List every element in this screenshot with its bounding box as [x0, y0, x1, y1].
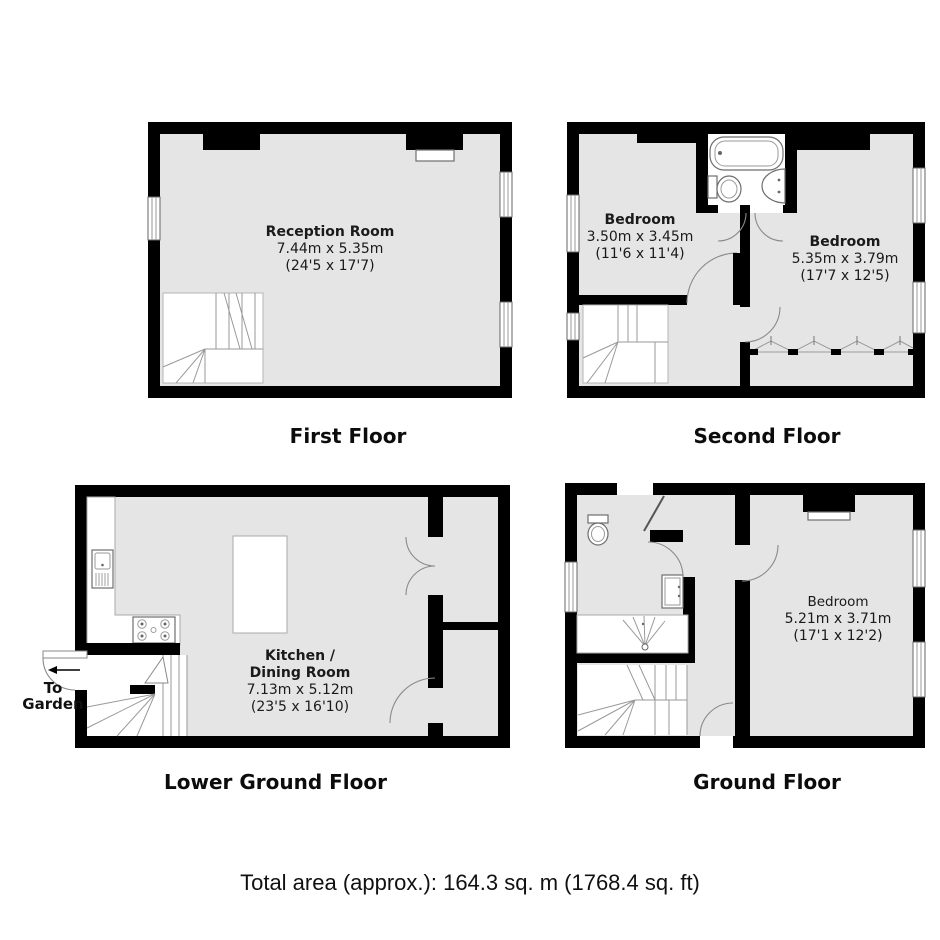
floor-title-lower-ground: Lower Ground Floor [58, 770, 493, 794]
garden-arrow-icon [48, 666, 57, 674]
window [500, 172, 512, 217]
room-dim-imperial: (17'1 x 12'2) [763, 628, 913, 645]
island-unit [233, 536, 287, 633]
floorplan-canvas: Reception Room 7.44m x 5.35m (24'5 x 17'… [0, 0, 940, 940]
total-area-text: Total area (approx.): 164.3 sq. m (1768.… [0, 870, 940, 896]
hob-icon [133, 617, 175, 643]
room-name-line1: Kitchen / [200, 648, 400, 665]
bathtub-icon [710, 137, 783, 170]
room-dim-imperial: (24'5 x 17'7) [230, 258, 430, 275]
window [913, 168, 925, 223]
sink-icon [662, 575, 683, 608]
room-dim-imperial: (17'7 x 12'5) [770, 268, 920, 285]
floor-title-second: Second Floor [588, 424, 940, 448]
stairs [163, 293, 263, 383]
window [500, 302, 512, 347]
room-name: Bedroom [763, 594, 913, 611]
window [913, 642, 925, 697]
room-dim-metric: 3.50m x 3.45m [575, 229, 705, 246]
stairs [583, 305, 668, 383]
room-label-bedroom1: Bedroom 3.50m x 3.45m (11'6 x 11'4) [575, 212, 705, 263]
room-label-kitchen: Kitchen / Dining Room 7.13m x 5.12m (23'… [200, 648, 400, 716]
room-label-bedroom2: Bedroom 5.35m x 3.79m (17'7 x 12'5) [770, 234, 920, 285]
room-dim-metric: 7.44m x 5.35m [230, 241, 430, 258]
room-dim-imperial: (23'5 x 16'10) [200, 699, 400, 716]
stairs [578, 665, 687, 735]
second-floor-plan: Bedroom 3.50m x 3.45m (11'6 x 11'4) Bedr… [567, 122, 925, 398]
room-dim-imperial: (11'6 x 11'4) [575, 246, 705, 263]
fireplace-icon [808, 512, 850, 520]
window [913, 282, 925, 333]
ground-floor-plan: Bedroom 5.21m x 3.71m (17'1 x 12'2) [565, 483, 925, 748]
window [565, 562, 577, 612]
to-garden-label: To Garden [2, 680, 104, 712]
chimney-breast [203, 134, 260, 150]
toilet-icon [708, 176, 741, 202]
room-label-reception: Reception Room 7.44m x 5.35m (24'5 x 17'… [230, 224, 430, 275]
window [567, 313, 579, 340]
room-label-bedroom: Bedroom 5.21m x 3.71m (17'1 x 12'2) [763, 594, 913, 645]
window [148, 197, 160, 240]
room-dim-metric: 7.13m x 5.12m [200, 682, 400, 699]
fireplace-icon [416, 150, 454, 161]
kitchen-sink-icon [92, 550, 113, 588]
top-door-opening [617, 483, 653, 495]
room-dim-metric: 5.21m x 3.71m [763, 611, 913, 628]
window [913, 530, 925, 587]
lower-ground-floor-plan: Kitchen / Dining Room 7.13m x 5.12m (23'… [75, 485, 510, 748]
chimney-breast [803, 495, 855, 512]
room-name: Reception Room [230, 224, 430, 241]
floor-title-first: First Floor [166, 424, 530, 448]
toilet-icon [588, 515, 608, 545]
room-name-line2: Dining Room [200, 665, 400, 682]
room-dim-metric: 5.35m x 3.79m [770, 251, 920, 268]
room-name: Bedroom [770, 234, 920, 251]
room-name: Bedroom [575, 212, 705, 229]
shower-icon [577, 615, 688, 653]
chimney-breast [406, 134, 463, 150]
first-floor-plan: Reception Room 7.44m x 5.35m (24'5 x 17'… [148, 122, 512, 398]
floor-title-ground: Ground Floor [587, 770, 940, 794]
